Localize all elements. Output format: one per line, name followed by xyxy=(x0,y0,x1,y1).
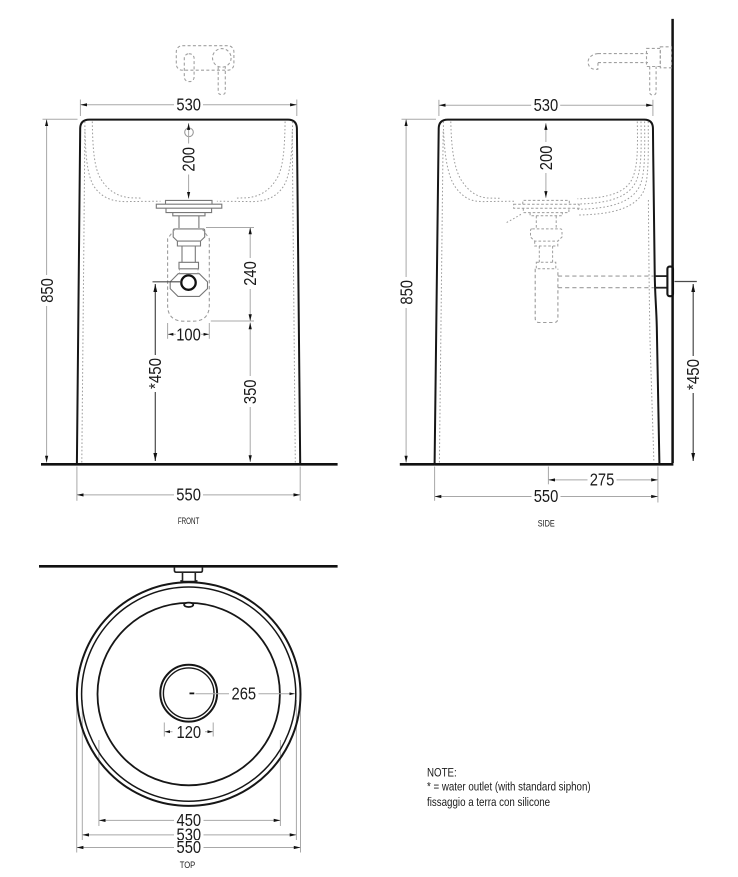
svg-text:200: 200 xyxy=(536,146,556,171)
svg-text:FRONT: FRONT xyxy=(178,516,200,526)
svg-text:SIDE: SIDE xyxy=(538,519,555,529)
svg-text:NOTE:: NOTE: xyxy=(427,765,457,779)
svg-text:850: 850 xyxy=(396,280,416,305)
svg-text:275: 275 xyxy=(590,470,615,490)
svg-text:850: 850 xyxy=(37,278,57,303)
svg-text:*450: *450 xyxy=(145,358,165,389)
svg-text:550: 550 xyxy=(534,486,559,506)
svg-text:530: 530 xyxy=(176,94,201,114)
svg-text:530: 530 xyxy=(534,95,559,115)
svg-text:550: 550 xyxy=(177,837,202,857)
svg-text:fissaggio a terra con silicone: fissaggio a terra con silicone xyxy=(427,795,550,809)
svg-text:350: 350 xyxy=(240,380,260,405)
svg-text:TOP: TOP xyxy=(180,860,196,870)
svg-text:240: 240 xyxy=(240,261,260,286)
svg-text:120: 120 xyxy=(177,722,202,742)
svg-text:550: 550 xyxy=(176,485,201,505)
svg-text:*450: *450 xyxy=(683,359,703,390)
svg-text:200: 200 xyxy=(179,147,199,172)
svg-text:265: 265 xyxy=(232,683,257,703)
svg-text:100: 100 xyxy=(176,324,201,344)
svg-text:* = water outlet (with standar: * = water outlet (with standard siphon) xyxy=(427,780,591,794)
